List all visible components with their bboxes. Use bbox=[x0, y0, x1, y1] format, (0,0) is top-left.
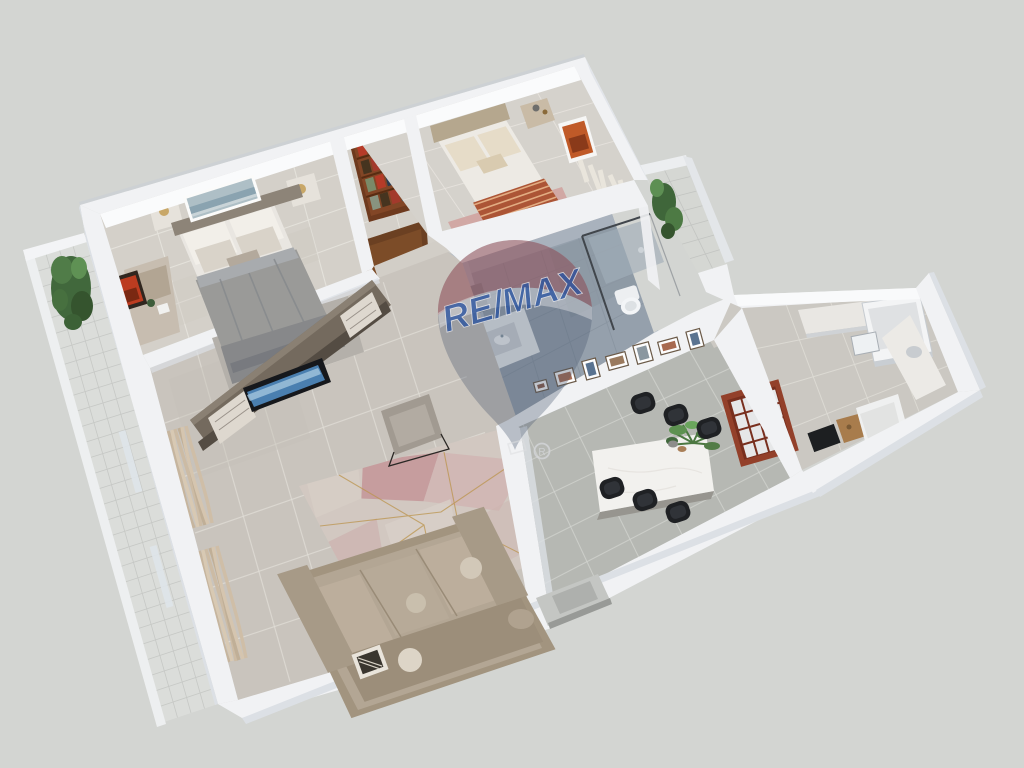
svg-text:R: R bbox=[538, 447, 545, 458]
